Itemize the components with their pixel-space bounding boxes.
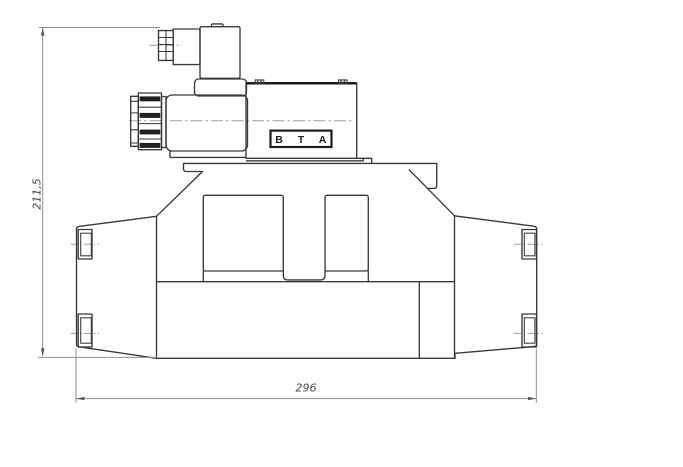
manual-override-nut bbox=[131, 93, 166, 150]
port-label-t: T bbox=[298, 134, 305, 146]
housing-window-left bbox=[203, 195, 283, 271]
housing-window-right bbox=[325, 195, 368, 271]
port-label-box: B T A bbox=[271, 131, 332, 147]
nut-rib-band bbox=[140, 96, 161, 101]
nut-collar bbox=[162, 97, 167, 148]
valve-body: B T A bbox=[246, 80, 357, 158]
valve-drawing: B T A bbox=[0, 0, 683, 467]
flange-plate bbox=[184, 163, 437, 188]
nut-rib-band bbox=[140, 143, 161, 148]
height-arrow-down bbox=[41, 348, 45, 356]
left-cap-profile bbox=[77, 216, 157, 358]
coil-base-step bbox=[170, 151, 246, 157]
height-arrow-up bbox=[41, 28, 45, 36]
body-screw-mark-right bbox=[339, 80, 348, 83]
central-housing bbox=[157, 195, 456, 358]
mounting-flange bbox=[157, 163, 455, 216]
port-label-a: A bbox=[319, 134, 327, 146]
nut-outer-step bbox=[131, 96, 139, 146]
width-dimension-label: 296 bbox=[296, 382, 317, 395]
left-bolt-bottom-inner bbox=[81, 318, 92, 343]
right-bolt-bottom-inner bbox=[524, 318, 535, 343]
nut-rib-band bbox=[140, 130, 161, 135]
height-dimension: 211,5 bbox=[31, 28, 161, 358]
din-connector bbox=[159, 24, 241, 78]
adapter-strips bbox=[170, 151, 372, 163]
connector-pedestal bbox=[195, 79, 247, 96]
cable-gland-body bbox=[173, 29, 200, 65]
center-land-channel bbox=[283, 271, 325, 280]
width-arrow-left bbox=[76, 397, 84, 400]
drawing-canvas: B T A bbox=[0, 0, 683, 467]
left-end-cap bbox=[77, 216, 157, 358]
right-end-cap bbox=[455, 216, 537, 358]
connector-body bbox=[200, 27, 240, 79]
solenoid bbox=[166, 79, 248, 151]
width-arrow-right bbox=[528, 397, 536, 400]
centerlines bbox=[71, 45, 543, 333]
solenoid-coil bbox=[166, 95, 248, 151]
nut-rib-band bbox=[140, 113, 161, 118]
port-label-b: B bbox=[275, 134, 283, 146]
nut-ribbed-body bbox=[138, 93, 161, 150]
right-shoulder-slope bbox=[409, 170, 454, 216]
left-shoulder-slope bbox=[157, 172, 203, 217]
body-screw-mark-left bbox=[255, 80, 264, 83]
height-dimension-label: 211,5 bbox=[31, 178, 44, 210]
